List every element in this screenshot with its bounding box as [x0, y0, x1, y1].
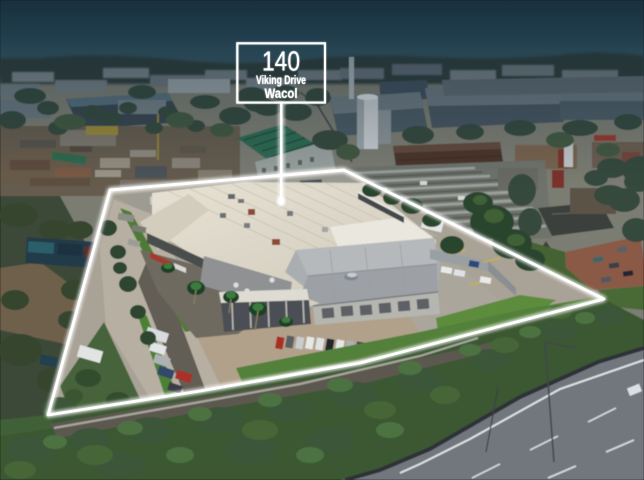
svg-text:140: 140: [262, 46, 300, 77]
svg-text:Wacol: Wacol: [265, 86, 298, 101]
